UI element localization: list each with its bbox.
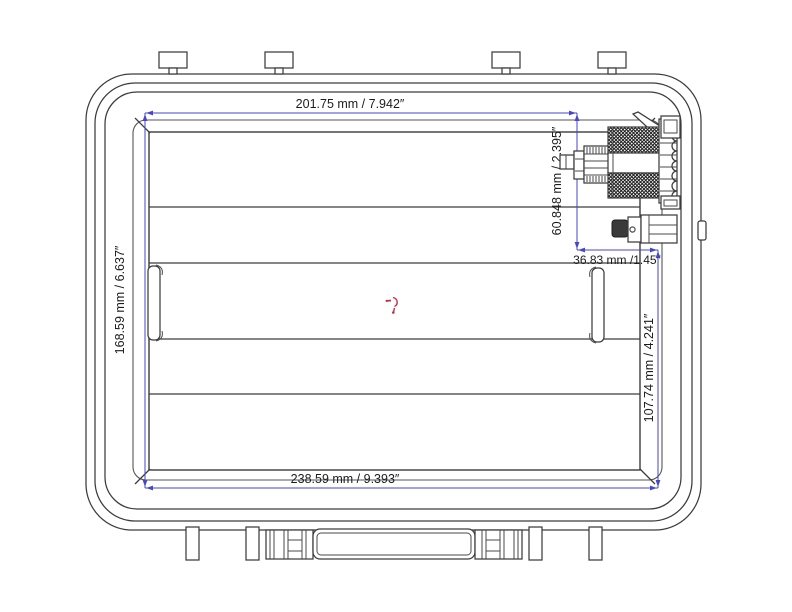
pilot-drill-bit — [560, 155, 574, 169]
latch-tab-head — [492, 52, 520, 68]
hinge-prong — [529, 527, 542, 560]
dimension-bottom-width: 238.59 mm / 9.393″ — [145, 472, 658, 490]
dimension-arrow — [575, 242, 580, 249]
latch-tab-neck — [275, 68, 283, 74]
dimension-label-tool-height: 60.848 mm / 2.395″ — [550, 126, 564, 235]
dimension-label-top: 201.75 mm / 7.942″ — [296, 97, 405, 111]
latch-tabs — [159, 52, 626, 74]
latch-tab-neck — [502, 68, 510, 74]
hole-saw-assembly — [560, 112, 680, 209]
dimension-label-left: 168.59 mm / 6.637″ — [113, 245, 127, 354]
dimension-top-width: 201.75 mm / 7.942″ — [145, 97, 577, 115]
dimension-arrow — [578, 248, 585, 253]
retention-clip-right — [590, 267, 604, 343]
dimension-label-bottom: 238.59 mm / 9.393″ — [291, 472, 400, 486]
latch-tab-head — [598, 52, 626, 68]
center-rotation-marker — [386, 298, 398, 314]
hinge-prong — [186, 527, 199, 560]
handle-grip-bar — [313, 529, 475, 559]
dimension-arrow — [143, 114, 148, 121]
knurl-band-bottom — [608, 173, 662, 198]
gripping-collar — [659, 116, 680, 209]
adapter-body — [641, 215, 677, 243]
latch-tab — [492, 52, 520, 74]
drive-square — [612, 220, 628, 237]
arbor-nut — [574, 151, 584, 179]
dimension-arrow — [146, 111, 153, 116]
dimension-arrow — [650, 248, 657, 253]
technical-drawing-canvas: 201.75 mm / 7.942″ 168.59 mm / 6.637″ 23… — [0, 0, 792, 612]
dimension-label-right: 107.74 mm / 4.241″ — [642, 313, 656, 422]
latch-tab-head — [265, 52, 293, 68]
marker-dot — [386, 300, 388, 302]
foam-slot-dividers — [149, 207, 640, 394]
square-drive-adapter — [612, 215, 677, 243]
arbor-shank — [584, 146, 610, 183]
dimension-arrow — [656, 480, 661, 487]
hinge-prong — [246, 527, 259, 560]
cavity-outline — [149, 132, 640, 470]
dimension-arrow — [146, 486, 153, 491]
hole-saw-cup — [608, 127, 662, 198]
handle-bracket-right — [475, 530, 522, 559]
hinge-prong — [589, 527, 602, 560]
retention-clip-left — [148, 265, 162, 341]
clip-body — [148, 266, 160, 340]
dimension-arrow — [650, 486, 657, 491]
marker-dot — [392, 311, 395, 314]
handle-bracket-left — [266, 530, 313, 559]
marker-curve — [393, 298, 397, 307]
handle-assembly — [266, 529, 522, 559]
clip-body — [592, 268, 604, 342]
drawing-page: 201.75 mm / 7.942″ 168.59 mm / 6.637″ 23… — [0, 0, 792, 612]
latch-tab — [265, 52, 293, 74]
latch-tab — [598, 52, 626, 74]
dimension-label-tool-width: 36.83 mm /1.45″ — [573, 253, 661, 267]
dimension-arrow — [575, 114, 580, 121]
cup-smooth-band — [608, 153, 662, 173]
dimension-tool-height: 60.848 mm / 2.395″ — [550, 113, 579, 250]
dimension-left-height: 168.59 mm / 6.637″ — [113, 113, 147, 488]
dimension-arrow — [569, 111, 576, 116]
latch-tab-head — [159, 52, 187, 68]
right-wall-tab — [698, 221, 706, 240]
knurl-band-top — [608, 127, 662, 153]
dimension-tool-width: 36.83 mm /1.45″ — [573, 248, 661, 267]
dimension-arrow — [143, 480, 148, 487]
cavity-corner-chamfer-br — [640, 469, 655, 484]
latch-tab-neck — [169, 68, 177, 74]
dimension-right-height: 107.74 mm / 4.241″ — [642, 250, 660, 488]
detent-ball — [630, 227, 635, 232]
latch-tab-neck — [608, 68, 616, 74]
latch-tab — [159, 52, 187, 74]
